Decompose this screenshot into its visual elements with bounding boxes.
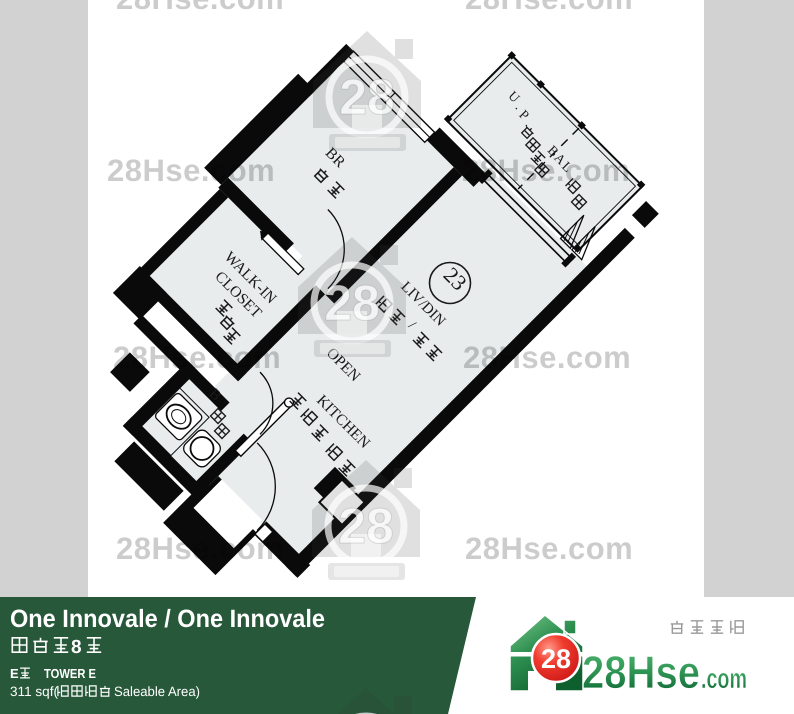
svg-text:28: 28 bbox=[541, 644, 571, 674]
svg-text:28Hse.com: 28Hse.com bbox=[465, 0, 633, 16]
svg-text:28: 28 bbox=[338, 498, 394, 554]
svg-text:28: 28 bbox=[339, 69, 395, 125]
svg-text:28Hse.com: 28Hse.com bbox=[107, 153, 275, 188]
svg-text:One Innovale / One Innovale: One Innovale / One Innovale bbox=[10, 605, 325, 633]
svg-text:28Hse.com: 28Hse.com bbox=[116, 531, 284, 566]
svg-text:28Hse: 28Hse bbox=[582, 646, 700, 698]
svg-text:.com: .com bbox=[701, 663, 747, 694]
svg-text:28: 28 bbox=[324, 275, 380, 331]
svg-text:28Hse.com: 28Hse.com bbox=[116, 0, 284, 16]
svg-text:311 sqf(: 311 sqf( bbox=[10, 684, 59, 699]
svg-text:28Hse.com: 28Hse.com bbox=[463, 340, 631, 375]
svg-text:28Hse.com: 28Hse.com bbox=[465, 531, 633, 566]
svg-text:8: 8 bbox=[71, 637, 82, 658]
svg-text:TOWER E: TOWER E bbox=[44, 666, 96, 681]
svg-text:28Hse.com: 28Hse.com bbox=[462, 153, 630, 188]
svg-text:28Hse.com: 28Hse.com bbox=[113, 340, 281, 375]
svg-text:E: E bbox=[10, 666, 19, 681]
svg-text:Saleable Area): Saleable Area) bbox=[114, 684, 200, 699]
